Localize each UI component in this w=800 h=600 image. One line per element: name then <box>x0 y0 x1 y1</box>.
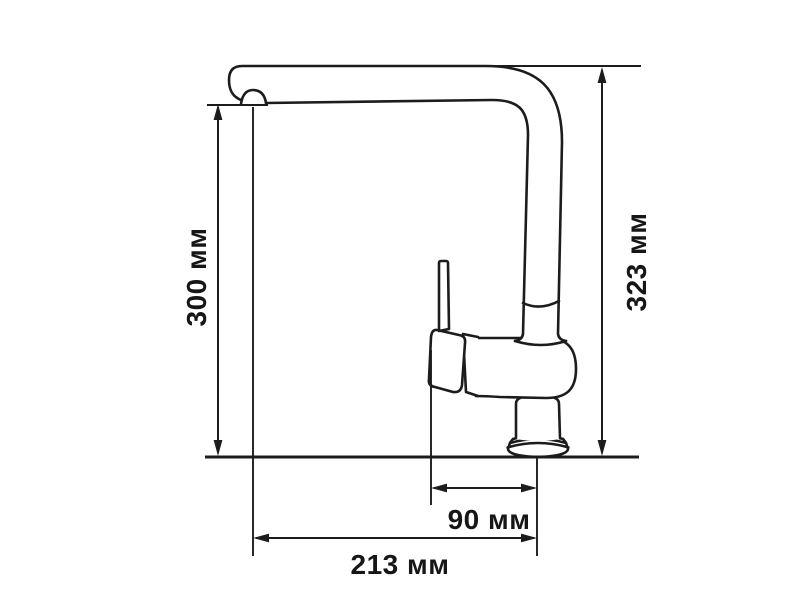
faucet-dimension-diagram: 300 мм 323 мм 90 мм 213 мм <box>0 0 800 600</box>
spout-inner-contour <box>266 100 528 341</box>
arrow-up-323 <box>598 67 607 83</box>
dim-label-spout-height: 300 мм <box>181 228 212 327</box>
spout-and-riser <box>229 66 566 345</box>
handle-base <box>429 330 465 392</box>
riser-ring-seam <box>523 301 559 307</box>
dimension-base-offset: 90 мм <box>431 484 537 535</box>
spout-outer-contour <box>229 66 566 341</box>
arrow-up-300 <box>214 104 223 120</box>
technical-drawing-canvas: 300 мм 323 мм 90 мм 213 мм <box>0 0 800 600</box>
faucet-outline <box>229 66 576 457</box>
arrow-left-90 <box>431 484 447 493</box>
arrow-down-300 <box>214 440 223 456</box>
arrow-down-323 <box>598 440 607 456</box>
aerator-tip <box>241 90 266 104</box>
dimension-total-height: 323 мм <box>598 67 652 456</box>
body-housing <box>476 338 576 398</box>
neck-mask <box>516 397 560 441</box>
arrow-right-90 <box>521 484 537 493</box>
dim-label-spout-reach: 213 мм <box>351 549 450 580</box>
arrow-left-213 <box>253 534 269 543</box>
flange-mid-arc <box>509 443 567 447</box>
extension-lines <box>207 66 641 556</box>
dim-label-total-height: 323 мм <box>621 213 652 312</box>
dimension-spout-reach: 213 мм <box>253 534 537 580</box>
handle-lever <box>439 261 449 331</box>
dim-label-base-offset: 90 мм <box>448 504 531 535</box>
dimension-spout-height: 300 мм <box>181 104 222 456</box>
